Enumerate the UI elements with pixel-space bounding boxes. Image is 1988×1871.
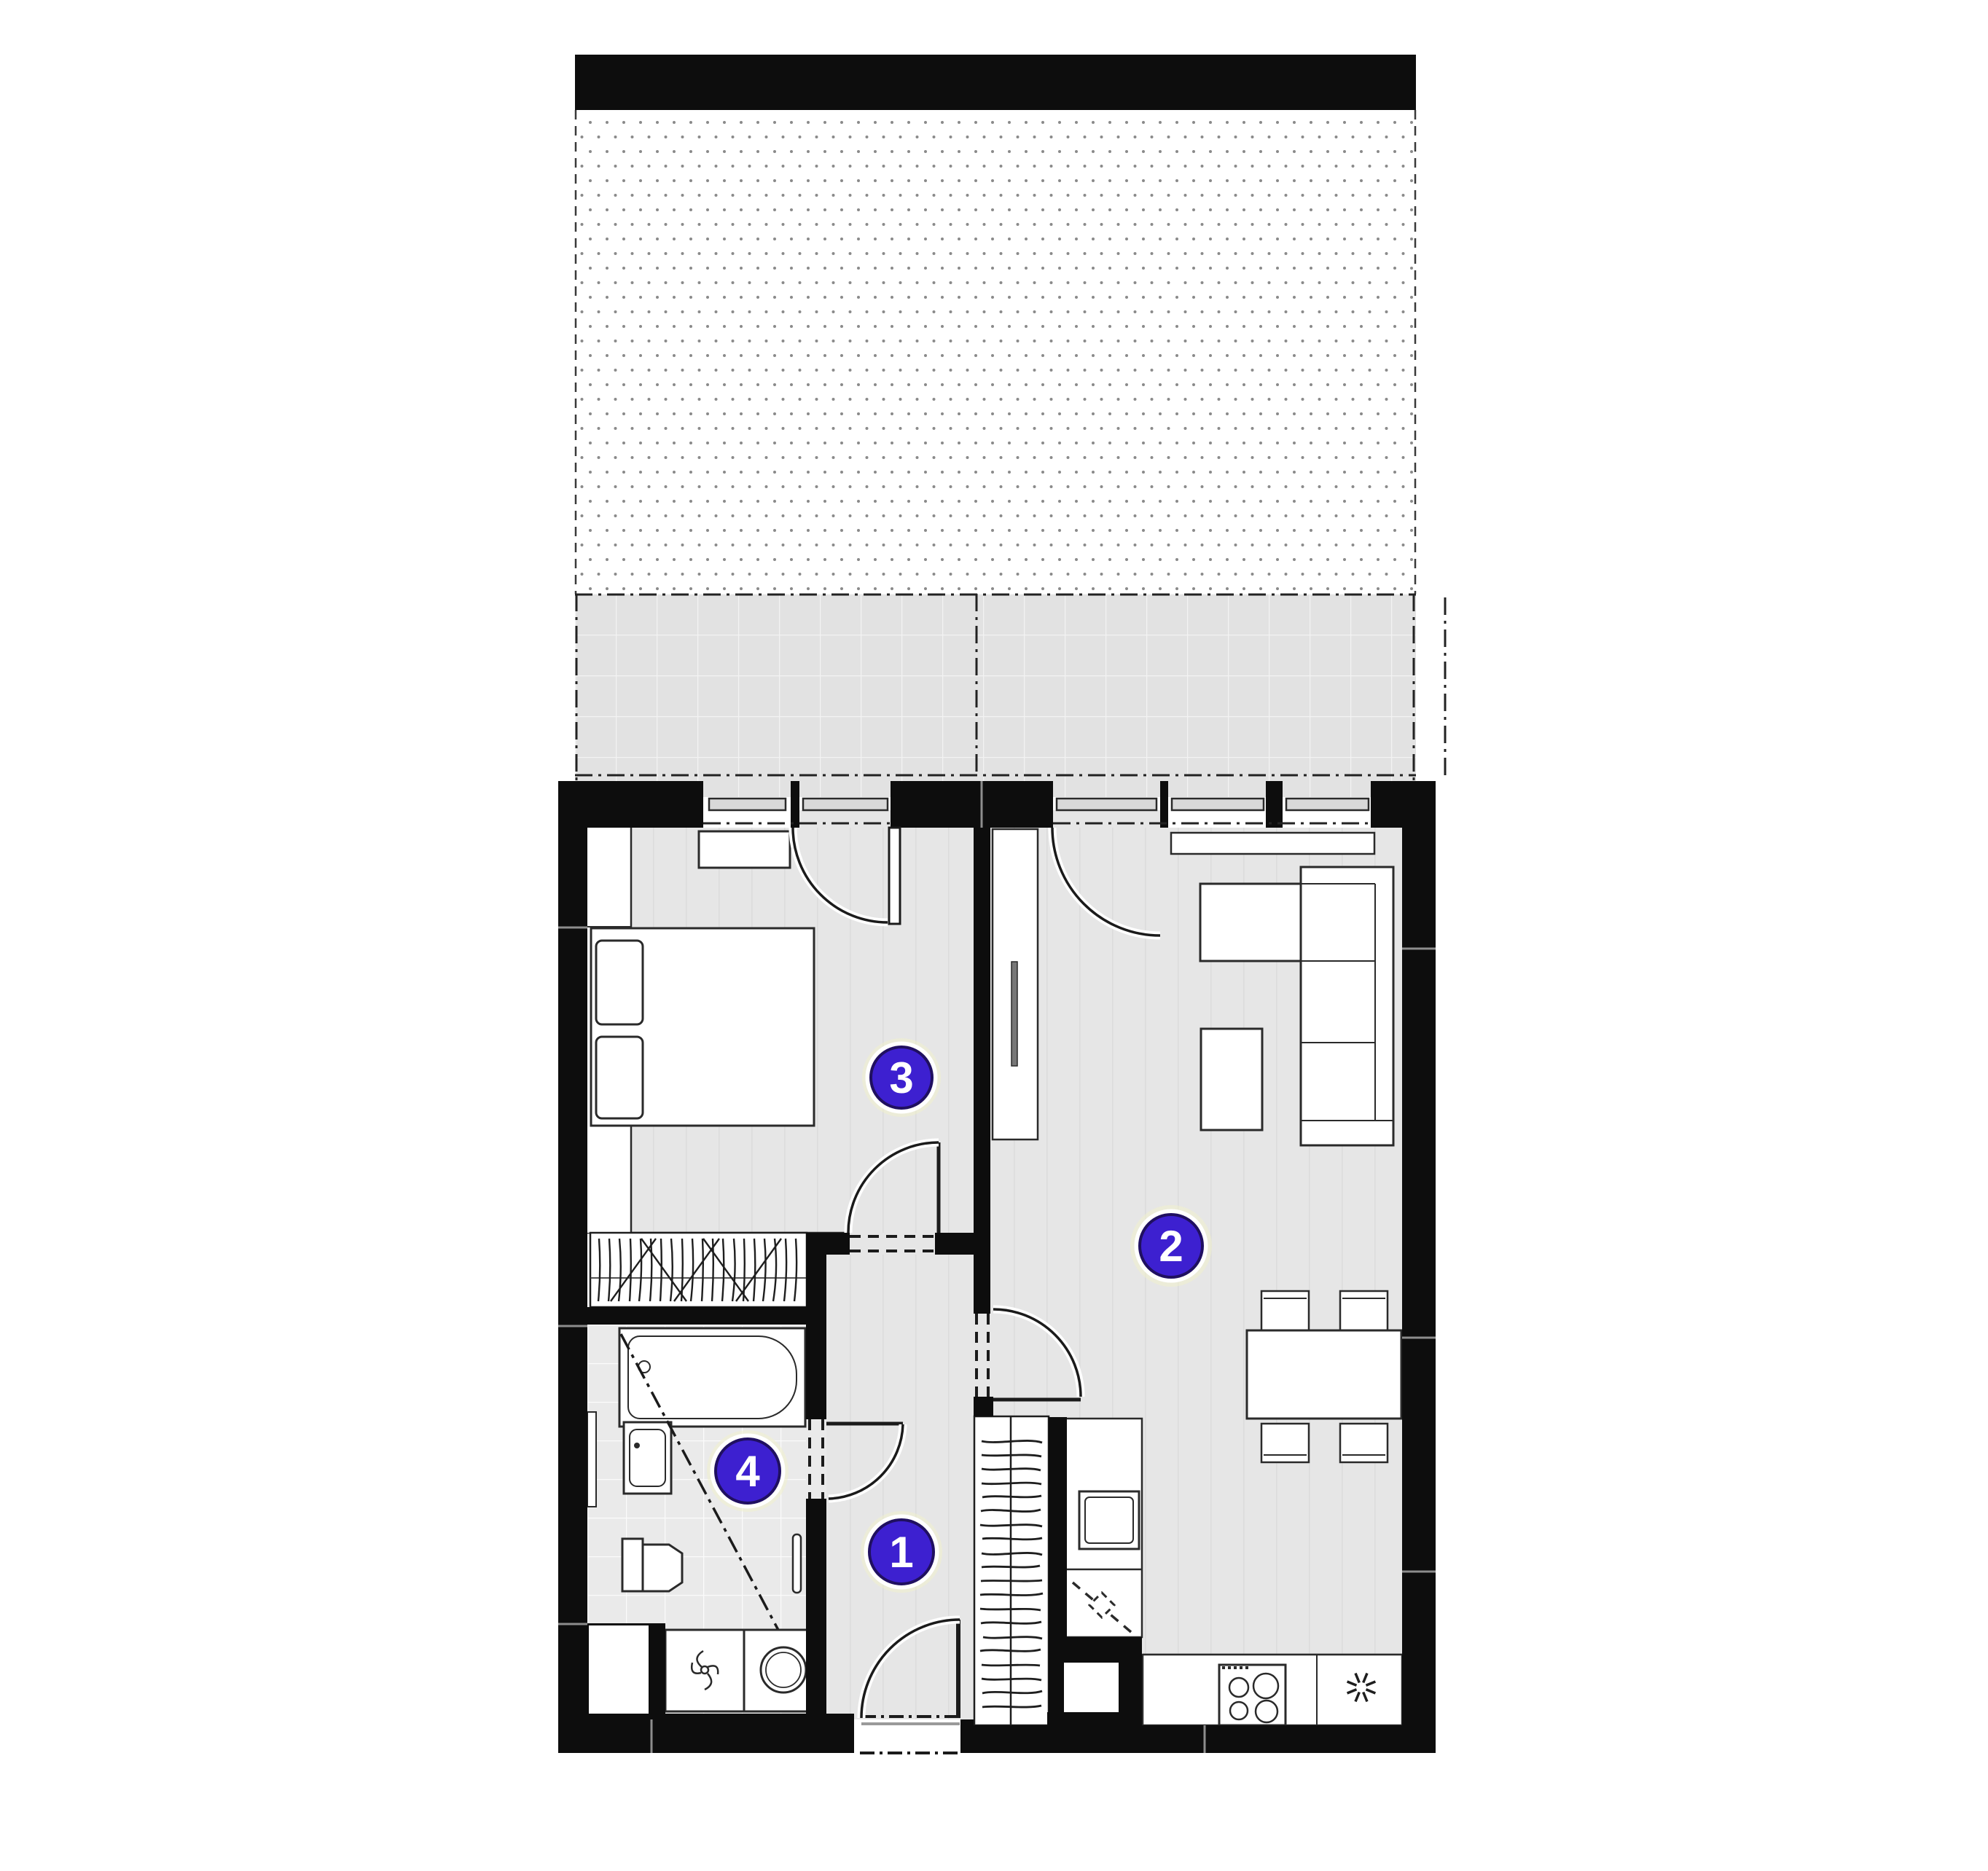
svg-text:4: 4: [735, 1447, 760, 1496]
svg-text:1: 1: [889, 1528, 913, 1577]
svg-text:2: 2: [1159, 1222, 1183, 1271]
svg-text:3: 3: [889, 1054, 913, 1102]
